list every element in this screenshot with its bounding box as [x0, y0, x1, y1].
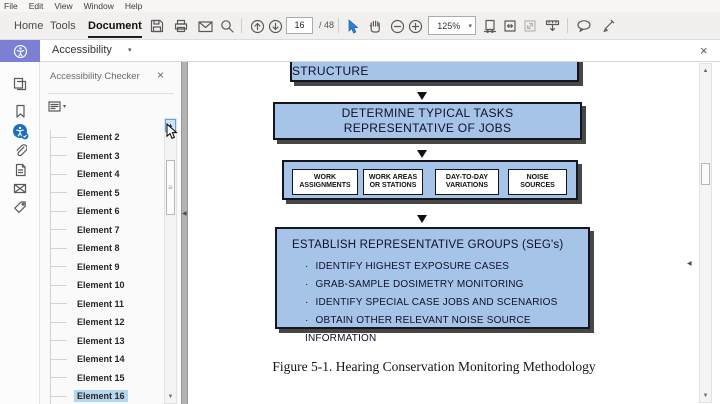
fit-width-icon[interactable] — [481, 17, 499, 35]
element-label[interactable]: Element 5 — [74, 187, 123, 199]
articles-icon[interactable] — [11, 161, 29, 179]
page-thumbnails-icon[interactable] — [11, 75, 29, 93]
element-label[interactable]: Element 11 — [74, 298, 127, 310]
bullet-icon: · — [305, 261, 309, 272]
bullet-icon: · — [305, 279, 309, 290]
tree-branch-line — [51, 377, 67, 378]
select-tool-icon[interactable] — [344, 17, 362, 35]
page-down-icon[interactable] — [266, 17, 284, 35]
menu-help[interactable]: Help — [125, 1, 142, 11]
panel-title: Accessibility Checker — [50, 71, 140, 82]
tree-branch-line — [51, 137, 67, 138]
element-label[interactable]: Element 2 — [74, 131, 123, 143]
scroll-down-icon[interactable]: ▼ — [165, 390, 176, 403]
fit-page-icon[interactable] — [501, 17, 519, 35]
tree-branch-line — [51, 229, 67, 230]
accessibility-bar: Accessibility ▾ × — [0, 40, 720, 62]
flow-box-tasks: DETERMINE TYPICAL TASKS REPRESENTATIVE O… — [273, 102, 582, 140]
email-icon[interactable] — [196, 17, 214, 35]
menu-edit[interactable]: Edit — [29, 1, 44, 11]
scroll-up-icon[interactable]: ▲ — [700, 64, 711, 77]
panel-scrollbar[interactable]: ▲ ≡ ▼ — [164, 118, 177, 404]
tree-branch-line — [51, 322, 67, 323]
element-row[interactable]: Element 15 — [40, 369, 164, 388]
element-row[interactable]: Element 8 — [40, 239, 164, 258]
element-label[interactable]: Element 15 — [74, 372, 128, 384]
element-label[interactable]: Element 10 — [74, 279, 128, 291]
fit-visible-icon[interactable] — [543, 17, 561, 35]
zoom-level-value: 125% — [429, 21, 468, 31]
menu-file[interactable]: File — [4, 1, 18, 11]
accessibility-menu[interactable]: Accessibility — [52, 44, 112, 56]
document-scrollbar[interactable]: ▲ ▼ — [699, 63, 712, 403]
bullet-icon: · — [305, 297, 309, 308]
hand-tool-icon[interactable] — [366, 17, 384, 35]
menu-view[interactable]: View — [54, 1, 72, 11]
print-icon[interactable] — [172, 17, 190, 35]
element-row[interactable]: Element 6 — [40, 202, 164, 221]
flow-bullet: ·IDENTIFY HIGHEST EXPOSURE CASES — [292, 258, 588, 276]
page-up-icon[interactable] — [248, 17, 266, 35]
collapse-right-icon[interactable]: ◀ — [687, 261, 692, 267]
tree-branch-line — [51, 303, 67, 304]
element-row[interactable]: Element 11 — [40, 295, 164, 314]
panel-options-button[interactable]: ▾ — [48, 100, 72, 113]
element-row[interactable]: Element 14 — [40, 350, 164, 369]
tree-branch-line — [51, 266, 67, 267]
flow-arrow-icon — [417, 150, 427, 158]
menu-window[interactable]: Window — [84, 1, 114, 11]
element-row[interactable]: Element 7 — [40, 221, 164, 240]
zoom-out-icon[interactable] — [388, 17, 406, 35]
tab-document[interactable]: Document — [88, 16, 142, 38]
chevron-down-icon: ▾ — [63, 103, 66, 110]
mouse-cursor — [166, 123, 179, 145]
element-row[interactable]: Element 13 — [40, 332, 164, 351]
panel-splitter[interactable]: ◀ — [181, 62, 188, 404]
destinations-icon[interactable] — [11, 179, 29, 197]
element-label[interactable]: Element 4 — [74, 168, 123, 180]
scrollbar-thumb[interactable]: ≡ — [166, 160, 175, 215]
flow-box-groups-title: ESTABLISH REPRESENTATIVE GROUPS (SEG's) — [292, 239, 588, 251]
tree-branch-line — [51, 396, 67, 397]
collapse-panel-icon[interactable]: ◀ — [182, 211, 187, 217]
element-row[interactable]: Element 12 — [40, 313, 164, 332]
tree-branch-line — [51, 340, 67, 341]
element-label[interactable]: Element 12 — [74, 316, 128, 328]
flow-box-tasks-line1: DETERMINE TYPICAL TASKS — [342, 106, 514, 121]
element-label[interactable]: Element 8 — [74, 242, 123, 254]
attachments-icon[interactable] — [11, 142, 29, 160]
chevron-down-icon: ▾ — [128, 46, 132, 54]
tree-branch-line — [51, 359, 67, 360]
chevron-down-icon: ▾ — [468, 22, 475, 30]
element-row[interactable]: Element 9 — [40, 258, 164, 277]
close-accessibility-bar-icon[interactable]: × — [700, 44, 708, 57]
element-label[interactable]: Element 13 — [74, 335, 128, 347]
scroll-down-icon[interactable]: ▼ — [700, 389, 711, 402]
element-row[interactable]: Element 4 — [40, 165, 164, 184]
page-number-input[interactable]: 16 — [286, 17, 313, 34]
bullet-icon: · — [305, 315, 309, 326]
close-panel-icon[interactable]: × — [157, 69, 164, 82]
tree-branch-line — [51, 155, 67, 156]
element-row[interactable]: Element 10 — [40, 276, 164, 295]
tree-branch-line — [51, 285, 67, 286]
page-count-label: / 48 — [319, 20, 334, 30]
flow-bullet: ·OBTAIN OTHER RELEVANT NOISE SOURCE INFO… — [292, 312, 588, 348]
accessibility-checker-panel: Accessibility Checker × ▾ Element 2Eleme… — [40, 62, 181, 404]
menu-bar: FileEditViewWindowHelp — [0, 0, 720, 12]
element-label[interactable]: Element 9 — [74, 261, 123, 273]
navigation-icon-strip — [0, 62, 40, 404]
flow-box-tasks-line2: REPRESENTATIVE OF JOBS — [344, 121, 512, 136]
pdf-application-window: FileEditViewWindowHelp HomeToolsDocument… — [0, 0, 720, 404]
flow-sub-box: NOISE SOURCES — [508, 169, 567, 195]
element-row[interactable]: Element 3 — [40, 147, 164, 166]
flow-arrow-icon — [417, 215, 427, 223]
panel-divider — [48, 93, 174, 94]
highlight-icon[interactable] — [599, 17, 617, 35]
figure-caption: Figure 5-1. Hearing Conservation Monitor… — [268, 359, 600, 375]
element-row[interactable]: Element 16 — [40, 387, 164, 404]
toolbar-separator — [567, 18, 568, 33]
flow-sub-box: WORK ASSIGNMENTS — [292, 169, 358, 195]
tree-branch-line — [51, 248, 67, 249]
toolbar-separator — [338, 18, 339, 33]
flow-sub-box: DAY-TO-DAY VARIATIONS — [435, 169, 499, 195]
actual-size-icon — [521, 17, 539, 35]
flow-bullet: ·GRAB-SAMPLE DOSIMETRY MONITORING — [292, 276, 588, 294]
tree-branch-line — [51, 192, 67, 193]
element-label[interactable]: Element 3 — [74, 150, 123, 162]
element-row[interactable]: Element 2 — [40, 128, 164, 147]
flow-box-groups: ESTABLISH REPRESENTATIVE GROUPS (SEG's) … — [275, 227, 590, 329]
search-icon[interactable] — [218, 17, 236, 35]
tab-home[interactable]: Home — [14, 16, 43, 38]
flow-sub-box: WORK AREAS OR STATIONS — [363, 169, 423, 195]
tree-branch-line — [51, 211, 67, 212]
document-page[interactable]: DETERMINE OVERALL WORK FORCE STRUCTURE D… — [188, 62, 714, 404]
toolbar-separator — [241, 18, 242, 33]
accessibility-panel-icon[interactable] — [11, 122, 29, 140]
element-row[interactable]: Element 5 — [40, 184, 164, 203]
flow-sub-box-container: WORK ASSIGNMENTSWORK AREAS OR STATIONSDA… — [282, 160, 578, 200]
tags-icon[interactable] — [11, 198, 29, 216]
tree-branch-line — [51, 174, 67, 175]
comment-icon[interactable] — [575, 17, 593, 35]
accessibility-badge-icon[interactable] — [0, 40, 40, 62]
flow-bullet: ·IDENTIFY SPECIAL CASE JOBS AND SCENARIO… — [292, 294, 588, 312]
element-label[interactable]: Element 6 — [74, 205, 123, 217]
bookmarks-icon[interactable] — [11, 102, 29, 120]
zoom-level-dropdown[interactable]: 125% ▾ — [428, 16, 476, 35]
save-icon[interactable] — [148, 17, 166, 35]
toolbar: HomeToolsDocument 16 / 48 — [0, 12, 720, 40]
zoom-in-icon[interactable] — [406, 17, 424, 35]
scrollbar-thumb[interactable] — [701, 163, 710, 185]
element-label[interactable]: Element 14 — [74, 353, 128, 365]
flow-box-top: DETERMINE OVERALL WORK FORCE STRUCTURE — [290, 62, 579, 82]
element-tree: Element 2Element 3Element 4Element 5Elem… — [40, 128, 164, 404]
flow-arrow-icon — [417, 92, 427, 100]
element-label[interactable]: Element 16 — [74, 390, 128, 402]
element-label[interactable]: Element 7 — [74, 224, 123, 236]
tab-tools[interactable]: Tools — [50, 16, 76, 38]
